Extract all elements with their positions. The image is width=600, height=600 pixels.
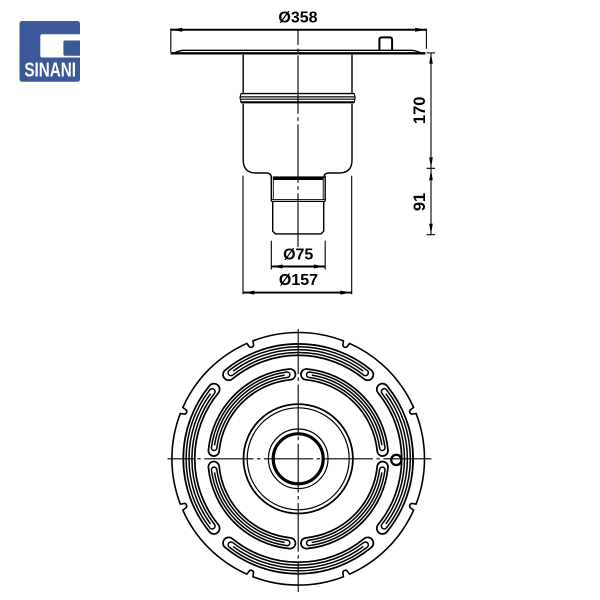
svg-text:Ø157: Ø157 <box>279 272 318 289</box>
svg-text:SINANI: SINANI <box>24 59 76 81</box>
svg-text:91: 91 <box>411 193 429 211</box>
svg-text:170: 170 <box>411 97 429 125</box>
svg-text:Ø75: Ø75 <box>283 247 313 264</box>
svg-text:Ø358: Ø358 <box>278 10 317 27</box>
